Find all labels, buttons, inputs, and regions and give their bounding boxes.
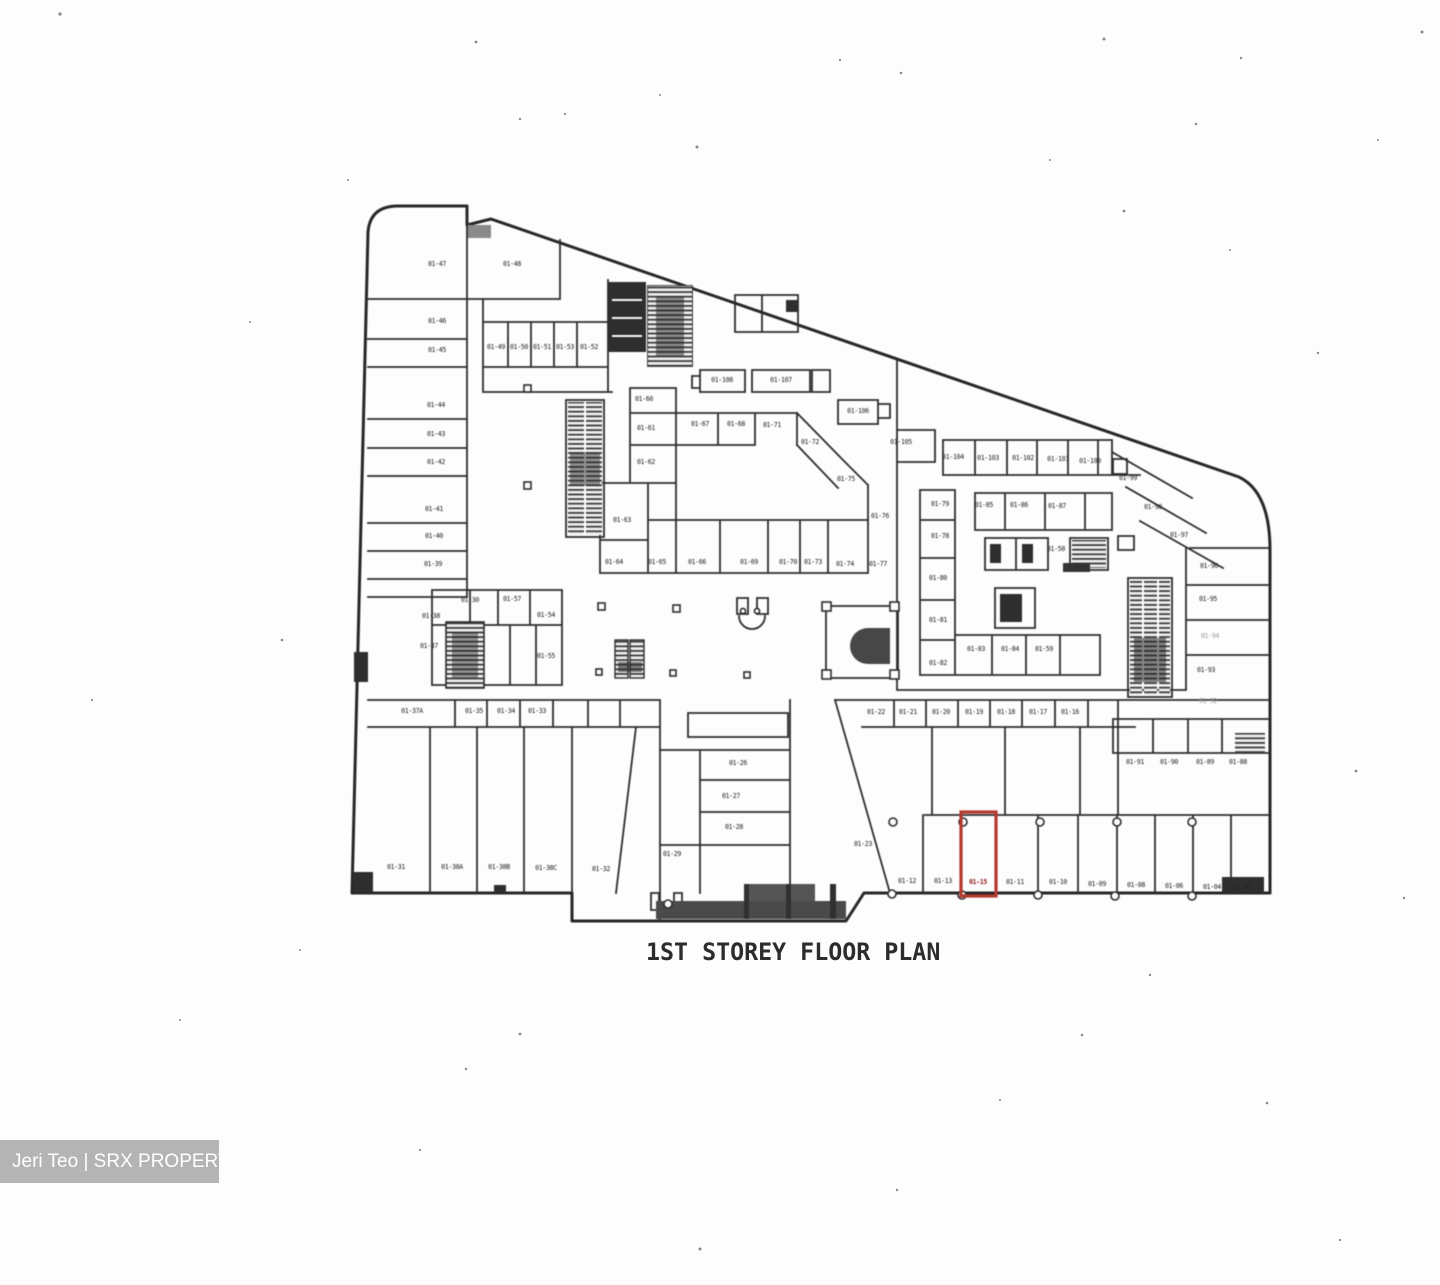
unit-label: 01-105: [890, 438, 912, 446]
unit-label: 01-73: [804, 558, 822, 566]
unit-label: 01-97: [1170, 531, 1188, 539]
unit-label: 01-23: [854, 840, 872, 848]
unit-label: 01-38B: [488, 863, 510, 871]
plan-title: 1ST STOREY FLOOR PLAN: [646, 938, 937, 966]
unit-label: 01-47: [428, 260, 446, 268]
unit-label: 01-103: [977, 454, 999, 462]
unit-label: 01-40: [425, 532, 443, 540]
unit-label: 01-90: [1160, 758, 1178, 766]
unit-label: 01-85: [975, 501, 993, 509]
highlighted-unit-label: 01-15: [969, 878, 987, 886]
unit-label: 01-93: [1197, 666, 1215, 674]
unit-label: 01-27: [722, 792, 740, 800]
unit-label: 01-91: [1126, 758, 1144, 766]
unit-label: 01-64: [605, 558, 623, 566]
unit-label: 01-42: [427, 458, 445, 466]
unit-label: 01-68: [727, 420, 745, 428]
unit-label: 01-57: [503, 595, 521, 603]
floor-plan-drawing: 01-4701-4601-4501-4401-4301-4201-4101-40…: [0, 0, 1440, 1285]
unit-label: 01-51: [533, 343, 551, 351]
unit-label: 01-38C: [535, 864, 557, 872]
unit-label: 01-101: [1047, 455, 1069, 463]
unit-label: 01-98: [1144, 503, 1162, 511]
listing-floorplan-image: 01-4701-4601-4501-4401-4301-4201-4101-40…: [0, 0, 1440, 1285]
unit-label: 01-28: [725, 823, 743, 831]
unit-label: 01-60: [635, 395, 653, 403]
unit-label: 01-61: [637, 424, 655, 432]
unit-label: 01-45: [428, 346, 446, 354]
unit-label: 01-50: [510, 343, 528, 351]
unit-label: 01-22: [867, 708, 885, 716]
watermark-text: Jeri Teo | SRX PROPERTY: [12, 1151, 242, 1172]
unit-label: 01-86: [1010, 501, 1028, 509]
unit-label: 01-89: [1196, 758, 1214, 766]
unit-label: 01-20: [932, 708, 950, 716]
unit-label: 01-108: [711, 376, 733, 384]
unit-label: 01-08: [1127, 881, 1145, 889]
unit-label: 01-38: [422, 612, 440, 620]
unit-label: 01-06: [1165, 882, 1183, 890]
unit-label: 01-82: [929, 659, 947, 667]
unit-label: 01-107: [770, 376, 792, 384]
unit-label: 01-29: [663, 850, 681, 858]
unit-label: 01-70: [779, 558, 797, 566]
unit-label: 01-54: [537, 611, 555, 619]
unit-label: 01-37: [420, 642, 438, 650]
unit-label: 01-46: [428, 317, 446, 325]
unit-label: 01-32: [592, 865, 610, 873]
unit-label: 01-77: [869, 560, 887, 568]
unit-label: 01-31: [387, 863, 405, 871]
unit-label: 01-75: [837, 475, 855, 483]
unit-label: 01-99: [1119, 474, 1137, 482]
unit-label: 01-59: [1035, 645, 1053, 653]
unit-label: 01-102: [1012, 454, 1034, 462]
unit-label: 01-74: [836, 560, 854, 568]
stairs-escalators: [353, 282, 1265, 919]
unit-label: 01-43: [427, 430, 445, 438]
unit-label: 01-04: [1203, 883, 1221, 891]
unit-label: 01-12: [898, 877, 916, 885]
unit-label: 01-18: [997, 708, 1015, 716]
unit-label: 01-13: [934, 877, 952, 885]
unit-label: 01-96: [1200, 562, 1218, 570]
unit-label: 01-02: [1233, 884, 1251, 892]
unit-label: 01-30: [461, 596, 479, 604]
unit-label: 01-33: [528, 707, 546, 715]
unit-label: 01-58: [1047, 545, 1065, 553]
unit-label: 01-104: [942, 453, 964, 461]
unit-label: 01-87: [1048, 502, 1066, 510]
unit-label: 01-92: [1199, 697, 1217, 705]
unit-label: 01-55: [537, 652, 555, 660]
unit-label: 01-44: [427, 401, 445, 409]
unit-label: 01-80: [929, 574, 947, 582]
unit-label: 01-66: [688, 558, 706, 566]
unit-label: 01-62: [637, 458, 655, 466]
unit-label: 01-100: [1079, 457, 1101, 465]
unit-label: 01-48: [503, 260, 521, 268]
unit-label: 01-72: [801, 438, 819, 446]
unit-label: 01-65: [648, 558, 666, 566]
unit-label: 01-81: [929, 616, 947, 624]
unit-label: 01-53: [556, 343, 574, 351]
unit-label: 01-39: [424, 560, 442, 568]
unit-label: 01-94: [1201, 632, 1219, 640]
unit-label: 01-09: [1088, 880, 1106, 888]
unit-label: 01-38A: [441, 863, 463, 871]
unit-label: 01-69: [740, 558, 758, 566]
unit-label: 01-17: [1029, 708, 1047, 716]
unit-label: 01-11: [1006, 878, 1024, 886]
unit-label: 01-52: [580, 343, 598, 351]
unit-label: 01-106: [847, 407, 869, 415]
unit-label: 01-95: [1199, 595, 1217, 603]
unit-label: 01-34: [497, 707, 515, 715]
watermark: Jeri Teo | SRX PROPERTY: [0, 1140, 219, 1183]
unit-label: 01-88: [1229, 758, 1247, 766]
unit-label: 01-19: [965, 708, 983, 716]
unit-label: 01-35: [465, 707, 483, 715]
unit-labels-layer: 01-4701-4601-4501-4401-4301-4201-4101-40…: [387, 260, 1251, 892]
unit-label: 01-79: [931, 500, 949, 508]
unit-label: 01-83: [967, 645, 985, 653]
unit-label: 01-10: [1049, 878, 1067, 886]
unit-label: 01-78: [931, 532, 949, 540]
unit-label: 01-21: [899, 708, 917, 716]
unit-label: 01-37A: [401, 707, 423, 715]
unit-label: 01-49: [487, 343, 505, 351]
unit-label: 01-67: [691, 420, 709, 428]
unit-label: 01-76: [871, 512, 889, 520]
unit-label: 01-41: [425, 505, 443, 513]
unit-label: 01-16: [1061, 708, 1079, 716]
unit-label: 01-84: [1001, 645, 1019, 653]
unit-label: 01-71: [763, 421, 781, 429]
unit-label: 01-63: [613, 516, 631, 524]
unit-label: 01-26: [729, 759, 747, 767]
